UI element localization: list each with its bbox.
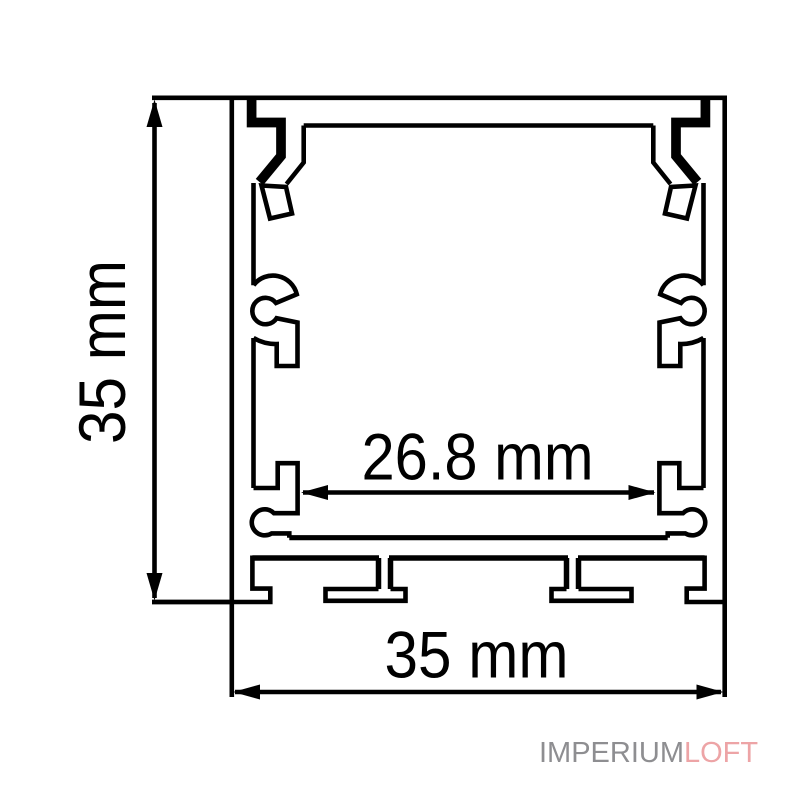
svg-text:IMPERIUMLOFT: IMPERIUMLOFT: [539, 737, 758, 769]
svg-text:35 mm: 35 mm: [385, 618, 569, 692]
svg-text:26.8 mm: 26.8 mm: [362, 420, 594, 494]
svg-text:35 mm: 35 mm: [65, 260, 139, 444]
